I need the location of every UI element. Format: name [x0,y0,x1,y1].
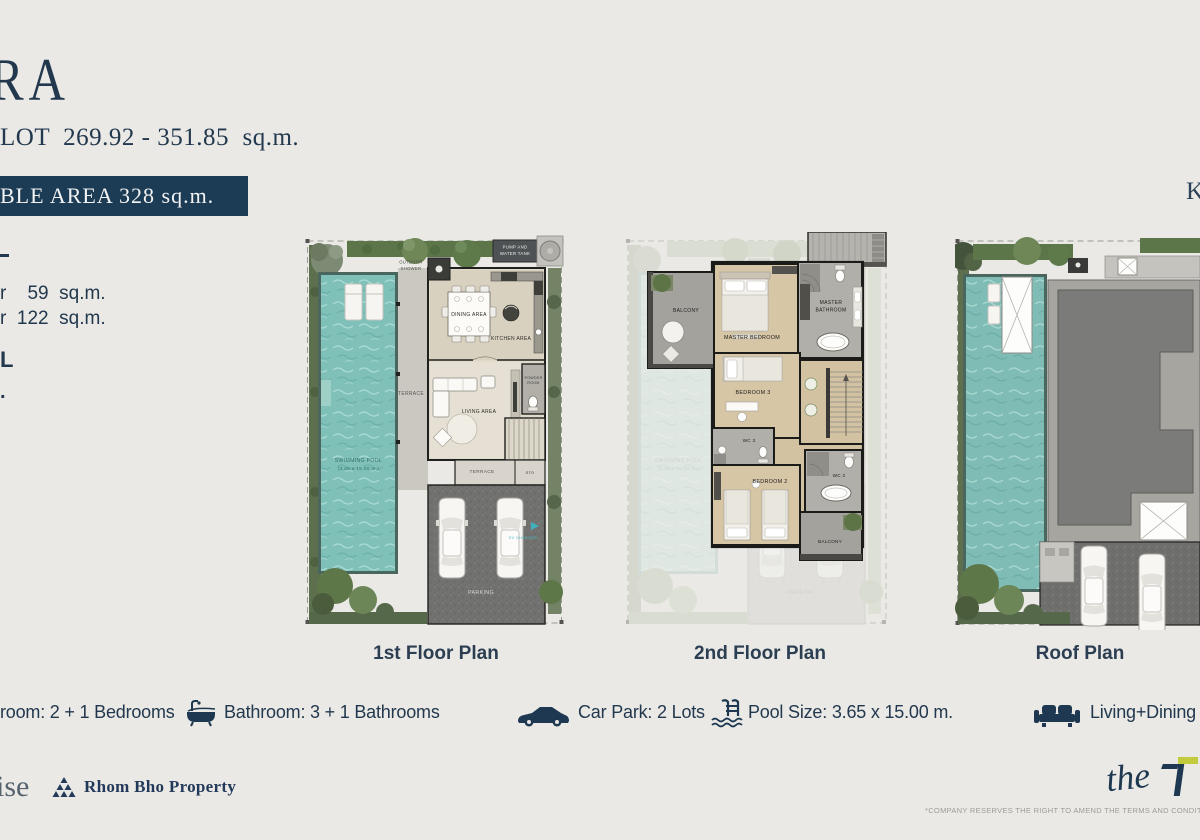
ghost-pool-label: SWIMMING POOL [655,458,702,464]
brochure-page: RA LOT 269.92 - 351.85 sq.m. BLE AREA 32… [0,0,1200,840]
brand-logo: the [1106,752,1200,804]
master-bathroom: MASTER BATHROOM [798,262,862,358]
first-floor-caption: 1st Floor Plan [305,643,567,665]
second-floor-plan-drawing: SWIMMING POOL (3.65 x 15.00 m.) PARKING [625,232,895,630]
ghost-parking-label: PARKING [788,590,814,596]
key-plan-fragment: K [1186,178,1200,206]
rhom-bho-logo-icon [52,776,76,798]
roof-plan-caption: Roof Plan [955,643,1200,665]
balcony-top: BALCONY [648,272,718,368]
master-bathroom-label-2: BATHROOM [816,308,847,314]
brand-t-accent [1178,757,1198,764]
partner-logo-fragment: ise [0,770,29,804]
dining-area-label: DINING AREA [451,312,487,318]
dash-fragment [0,254,9,257]
wc-3: WC 3 [712,428,774,468]
pool-size-label: (3.65 x 15.00 m.) [338,466,379,472]
kitchen-area-label: KITCHEN AREA [491,336,532,342]
pump-label-2: WATER TANK [500,251,530,256]
brand-script-text: the [1104,754,1152,800]
pool-lounger [345,284,362,320]
bathtub-icon [184,698,218,728]
roof-plan [955,232,1200,630]
terrace-label: TERRACE [398,391,424,397]
powder-room-label-2: ROOM [527,381,539,385]
feature-bathrooms: Bathroom: 3 + 1 Bathrooms [224,702,440,723]
balcony-bottom: BALCONY [800,512,862,560]
master-bedroom: MASTER BEDROOM [714,264,800,360]
swimming-pool [963,274,1047,592]
first-floor-plan: SWIMMING POOL (3.65 x 15.00 m.) TERRACE [305,232,567,630]
second-floor-plan: SWIMMING POOL (3.65 x 15.00 m.) PARKING [625,232,895,630]
powder-room: POWDER ROOM [522,364,545,414]
bedroom-2: BEDROOM 2 [712,465,800,545]
balcony-bottom-label: BALCONY [818,539,842,544]
pump-and-water-tank: PUMP AND WATER TANK [493,236,563,266]
living-rug [447,414,477,444]
stairs [505,418,545,460]
master-bathroom-label: MASTER [820,300,843,306]
front-terrace-label: TERRACE [469,469,494,475]
house-footprint: DINING AREA KITCHEN AREA LIVING AREA [428,268,545,460]
storage-label: STO [526,471,535,475]
developer-name: Rhom Bho Property [84,777,236,797]
brand-t-bar [1161,764,1179,769]
usable-area-text: BLE AREA 328 sq.m. [0,183,214,209]
project-title-fragment: RA [0,46,70,115]
powder-room-label: POWDER [525,376,543,380]
skylight-panel [1002,277,1032,353]
usable-area-banner: BLE AREA 328 sq.m. [0,176,248,216]
feature-living-dining: Living+Dining [1090,702,1196,723]
roof-equipment [1068,258,1137,275]
roof-deck [808,232,886,266]
car-icon [516,704,570,728]
wc-2-label: WC 2 [833,473,846,478]
ghost-pool-size-label: (3.65 x 15.00 m.) [658,466,699,472]
feature-car-park: Car Park: 2 Lots [578,702,705,723]
wc-3-label: WC 3 [743,438,756,443]
second-floor-caption: 2nd Floor Plan [625,643,895,665]
outdoor-shower-label-2: SHOWER [401,266,422,271]
letter-fragment: L [0,347,13,373]
lot-size-line: LOT 269.92 - 351.85 sq.m. [0,124,299,152]
kitchen-island [503,305,519,321]
swimming-pool: SWIMMING POOL (3.65 x 15.00 m.) [318,272,398,574]
feature-bedrooms: room: 2 + 1 Bedrooms [0,702,175,723]
parking-label: PARKING [468,590,494,596]
first-floor-plan-drawing: SWIMMING POOL (3.65 x 15.00 m.) TERRACE [305,232,567,630]
stairs [800,360,863,444]
ev-charger-label: EV CHARGER [509,536,537,540]
wc-2: WC 2 [805,450,862,512]
parking-area: PARKING EV CHARGER [428,485,545,624]
entry-terrace: TERRACE STO [455,460,545,485]
pool-lounger [366,284,383,320]
pump-label: PUMP AND [503,245,528,250]
feature-pool-size: Pool Size: 3.65 x 15.00 m. [748,702,953,723]
sofa-icon [1032,702,1082,730]
dot-fragment: . [0,381,6,404]
master-bedroom-label: MASTER BEDROOM [724,335,780,341]
bedroom-3: BEDROOM 3 [714,353,800,438]
living-area-label: LIVING AREA [462,409,497,415]
pool-label: SWIMMING POOL [335,458,382,464]
outdoor-shower-label: OUTDOOR [399,260,423,265]
roof-skylight [1140,502,1187,540]
roof-slab [1048,280,1200,547]
balcony-top-label: BALCONY [673,308,699,314]
bedroom-2-label: BEDROOM 2 [752,479,787,485]
pool-ladder-icon [710,698,744,730]
roof-plan-drawing [955,232,1200,630]
side-terrace: TERRACE [396,268,428,490]
floor-area-line-2: r 122 sq.m. [0,308,106,330]
bedroom-3-label: BEDROOM 3 [735,390,770,396]
disclaimer-text: *COMPANY RESERVES THE RIGHT TO AMEND THE… [925,806,1200,815]
floor-area-line-1: r 59 sq.m. [0,283,106,305]
